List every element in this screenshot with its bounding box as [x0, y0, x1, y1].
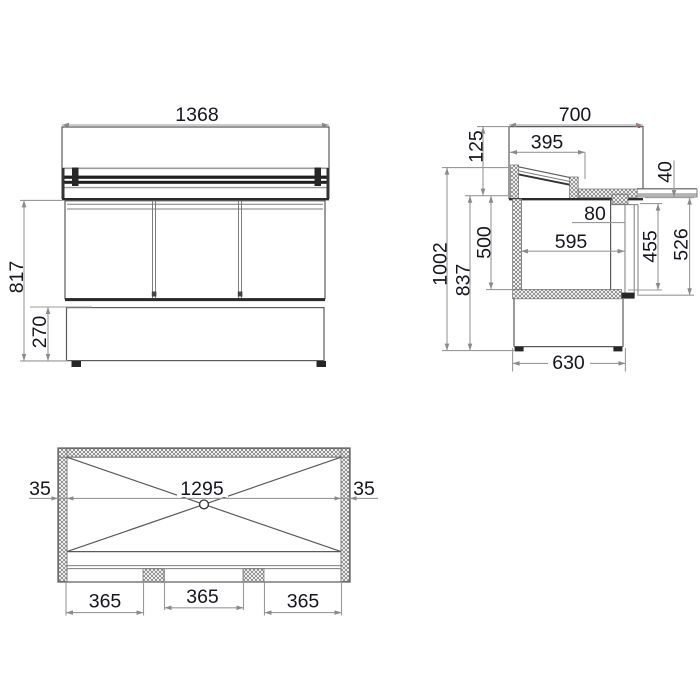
side-chamber-height-label: 500 [473, 226, 495, 259]
red-dot-artifact [638, 126, 640, 128]
front-view: 1368 817 270 [6, 104, 329, 367]
plan-wall-left [59, 449, 67, 582]
front-overall-width-label: 1368 [175, 104, 218, 126]
side-foot-left [515, 347, 524, 352]
plan-board-separator-2 [243, 569, 264, 582]
front-door-area [65, 201, 325, 299]
side-rail-depth-label: 80 [584, 203, 606, 225]
side-lid-slope-1 [513, 166, 576, 179]
plan-board-right-label: 365 [287, 591, 320, 613]
front-doors [65, 201, 325, 300]
dimension-drawing: 1368 817 270 [0, 0, 700, 700]
side-counter-overhang [637, 194, 697, 198]
side-lid-wall-left [511, 165, 519, 199]
side-lid-depth-label: 395 [531, 132, 564, 154]
front-base-height-label: 270 [29, 316, 51, 349]
side-door-height-label: 526 [670, 228, 692, 261]
side-chamber-wall-left [513, 199, 522, 289]
side-wall-block-right [612, 194, 628, 204]
plan-wall-right [341, 449, 349, 582]
plan-outline [58, 448, 350, 582]
front-plinth [67, 308, 327, 367]
side-base-depth-label: 630 [552, 352, 585, 374]
front-worktop-height-label: 817 [6, 261, 28, 294]
side-dimensions: 700 395 125 40 80 595 455 526 50 [429, 104, 694, 374]
side-overall-height-label: 1002 [429, 242, 451, 285]
front-dimensions: 1368 817 270 [6, 104, 329, 361]
front-lid-endcap-left [72, 168, 79, 187]
side-lid-wall-right [570, 177, 579, 199]
plan-board-separator-1 [143, 569, 164, 582]
side-base [514, 299, 623, 351]
front-lid-band-lower [63, 181, 328, 184]
side-overall-depth-label: 700 [559, 104, 592, 126]
side-counter-insulation [578, 189, 637, 197]
plan-wall-top [59, 449, 350, 457]
plan-opening-width-label: 1295 [180, 478, 224, 500]
front-lid-endcap-right [315, 168, 322, 187]
technical-drawing-page: 1368 817 270 [0, 0, 700, 700]
front-base-outline [67, 308, 325, 361]
front-top-section [62, 127, 329, 199]
side-foot-right [613, 347, 622, 352]
plan-drain-hole [200, 500, 209, 509]
front-foot-right [317, 361, 327, 367]
side-chamber-depth-label: 595 [555, 231, 588, 253]
plan-body [58, 448, 350, 582]
side-door-opening-label: 455 [639, 230, 661, 263]
front-foot-left [72, 361, 82, 367]
side-worktop-height-label: 837 [452, 264, 474, 297]
plan-rim-right-label: 35 [353, 478, 375, 500]
plan-view: 1295 35 35 365 365 365 [29, 448, 378, 616]
plan-cutting-boards [67, 566, 341, 582]
side-door-bottom-seal [622, 293, 635, 299]
plan-board-left-label: 365 [89, 591, 122, 613]
front-lid-band-upper [63, 176, 328, 179]
plan-rim-left-label: 35 [29, 478, 51, 500]
side-counter-thickness-label: 40 [654, 161, 676, 183]
plan-board-center-label: 365 [186, 586, 219, 608]
side-chamber-floor [513, 289, 622, 298]
side-view: 700 395 125 40 80 595 455 526 50 [429, 104, 697, 374]
side-lid-rise-label: 125 [465, 130, 487, 163]
